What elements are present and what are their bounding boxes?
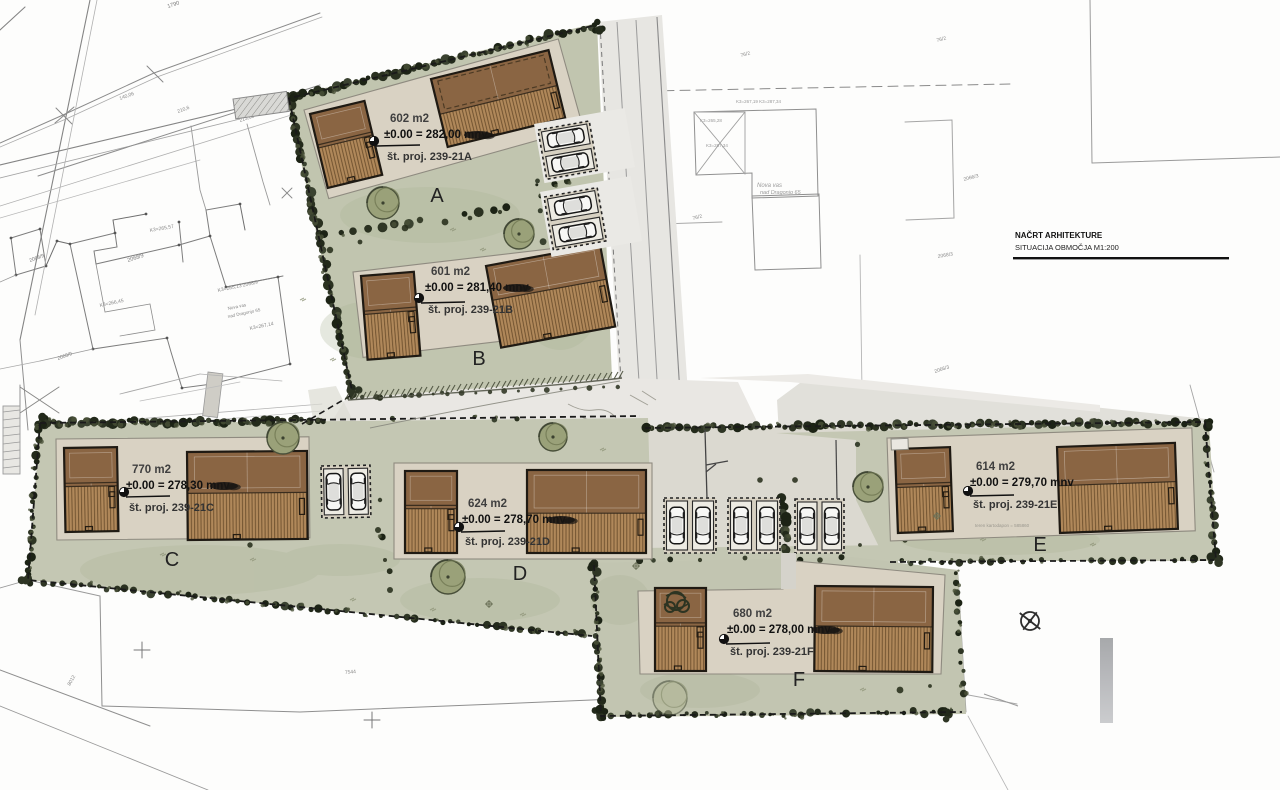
svg-text:B: B	[472, 348, 485, 370]
svg-text:K3=267,19 K3=287,34: K3=267,19 K3=287,34	[736, 99, 782, 104]
svg-text:601 m2: 601 m2	[431, 266, 470, 278]
svg-text:št. proj. 239-21C: št. proj. 239-21C	[129, 502, 214, 514]
svg-text:680 m2: 680 m2	[733, 608, 772, 620]
svg-text:770 m2: 770 m2	[132, 464, 171, 476]
svg-text:K3=287,34: K3=287,34	[706, 143, 728, 148]
svg-text:SITUACIJA OBMOČJA M1:200: SITUACIJA OBMOČJA M1:200	[1015, 243, 1119, 252]
svg-text:NAČRT ARHITEKTURE: NAČRT ARHITEKTURE	[1015, 231, 1103, 240]
svg-text:teren kartodapon = 585860: teren kartodapon = 585860	[975, 523, 1030, 528]
svg-text:nad Dragonjo 65: nad Dragonjo 65	[760, 190, 802, 196]
svg-text:št. proj. 239-21E: št. proj. 239-21E	[973, 499, 1057, 511]
svg-text:C: C	[165, 549, 179, 571]
svg-text:D: D	[513, 563, 527, 585]
svg-text:K3=265,28: K3=265,28	[700, 118, 722, 123]
svg-text:št. proj. 239-21F: št. proj. 239-21F	[730, 646, 814, 658]
svg-text:602 m2: 602 m2	[390, 113, 429, 125]
svg-text:±0.00 = 279,70 mnv: ±0.00 = 279,70 mnv	[970, 477, 1074, 489]
svg-text:št. proj. 239-21B: št. proj. 239-21B	[428, 304, 513, 316]
svg-text:št. proj. 239-21D: št. proj. 239-21D	[465, 536, 550, 548]
svg-text:624 m2: 624 m2	[468, 498, 507, 510]
svg-text:A: A	[430, 185, 444, 207]
svg-text:614 m2: 614 m2	[976, 461, 1015, 473]
svg-text:E: E	[1033, 534, 1046, 556]
svg-text:Nova vas: Nova vas	[757, 183, 782, 189]
svg-text:F: F	[793, 669, 805, 691]
svg-text:št. proj. 239-21A: št. proj. 239-21A	[387, 151, 472, 163]
svg-text:7544: 7544	[345, 669, 357, 676]
